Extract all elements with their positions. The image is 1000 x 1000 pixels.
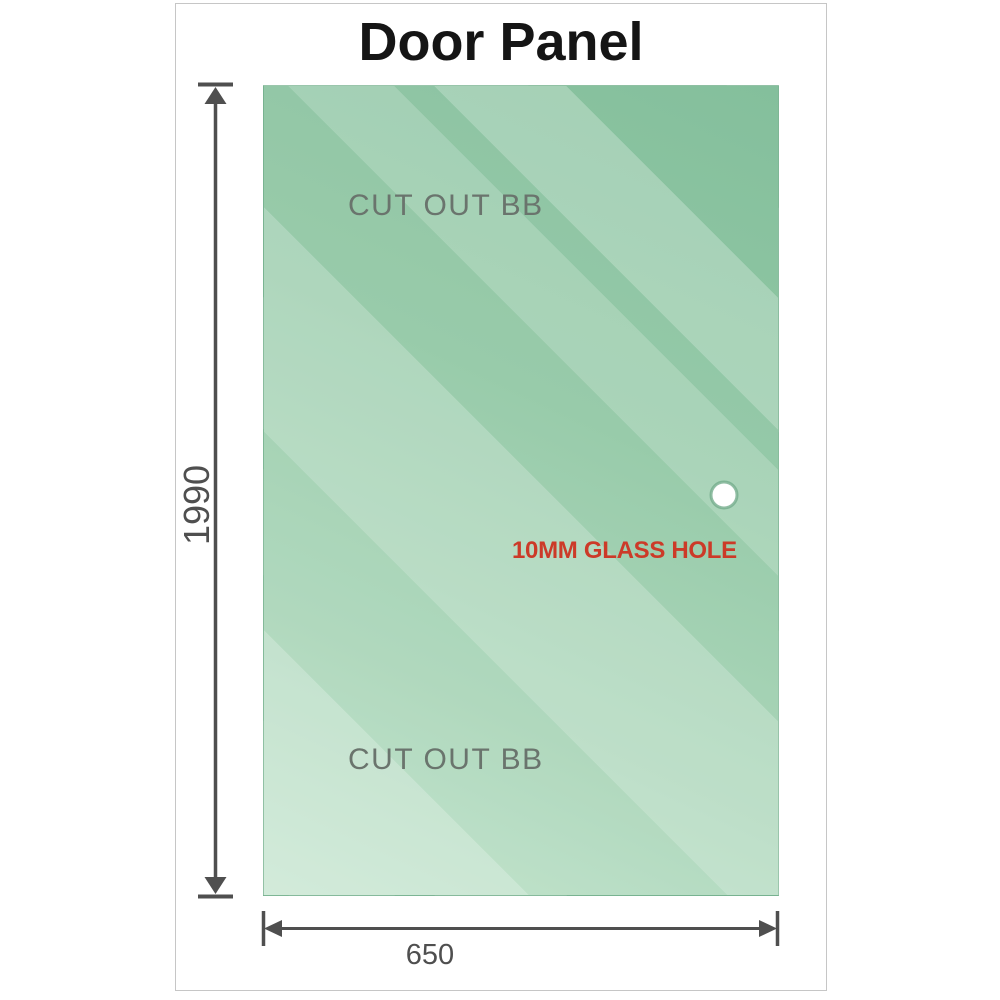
cutout-bottom-label: CUT OUT BB <box>348 745 544 775</box>
height-dimension-value: 1990 <box>179 435 215 575</box>
page-title: Door Panel <box>175 15 827 69</box>
width-dimension-value: 650 <box>398 941 462 970</box>
door-panel-diagram: Door Panel <box>0 0 1000 1000</box>
glass-hole-label: 10MM GLASS HOLE <box>512 539 737 563</box>
cutout-top-label: CUT OUT BB <box>348 191 544 221</box>
